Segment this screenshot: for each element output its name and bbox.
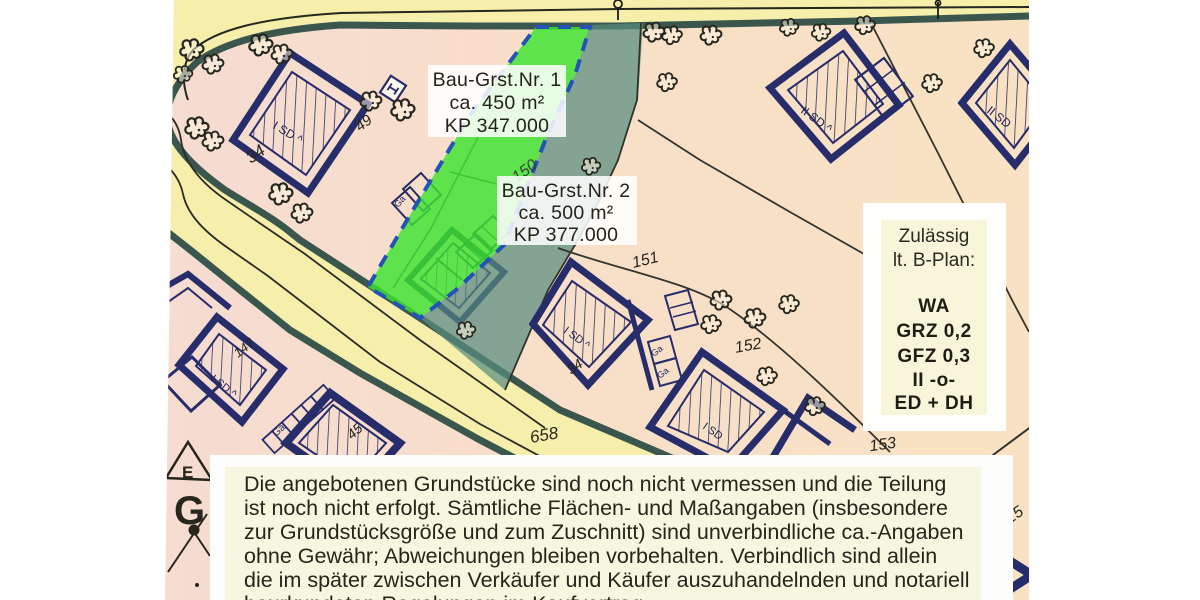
svg-text:zur Grundstücksgröße und zum Z: zur Grundstücksgröße und zum Zuschnitt) … [244, 520, 963, 544]
svg-text:Zulässig: Zulässig [899, 226, 970, 247]
svg-text:II -o-: II -o- [912, 370, 955, 391]
svg-text:beurkundeten Regelungen im Kau: beurkundeten Regelungen im Kaufvertrag. [244, 592, 649, 600]
svg-text:G: G [174, 489, 205, 533]
svg-text:Bau-Grst.Nr. 2: Bau-Grst.Nr. 2 [502, 180, 631, 202]
svg-text:ca. 500 m²: ca. 500 m² [518, 202, 613, 224]
svg-text:die im später zwischen Verkäuf: die im später zwischen Verkäufer und Käu… [244, 568, 970, 592]
svg-text:ist noch nicht erfolgt. Sämtli: ist noch nicht erfolgt. Sämtliche Fläche… [244, 496, 948, 520]
svg-text:GFZ 0,3: GFZ 0,3 [897, 346, 970, 367]
svg-text:Die angebotenen Grundstücke si: Die angebotenen Grundstücke sind noch ni… [244, 472, 946, 496]
svg-text:E: E [182, 463, 193, 482]
svg-text:ED + DH: ED + DH [895, 393, 974, 414]
svg-text:Bau-Grst.Nr. 1: Bau-Grst.Nr. 1 [433, 69, 562, 91]
svg-text:ca. 450 m²: ca. 450 m² [449, 92, 544, 114]
svg-text:GRZ 0,2: GRZ 0,2 [896, 321, 971, 342]
svg-text:ohne Gewähr; Abweichungen blei: ohne Gewähr; Abweichungen bleiben vorbeh… [244, 544, 937, 568]
svg-text:KP 347.000: KP 347.000 [445, 115, 550, 137]
svg-text:WA: WA [918, 296, 950, 317]
svg-text:KP 377.000: KP 377.000 [514, 224, 619, 246]
svg-text:lt. B-Plan:: lt. B-Plan: [893, 250, 975, 271]
